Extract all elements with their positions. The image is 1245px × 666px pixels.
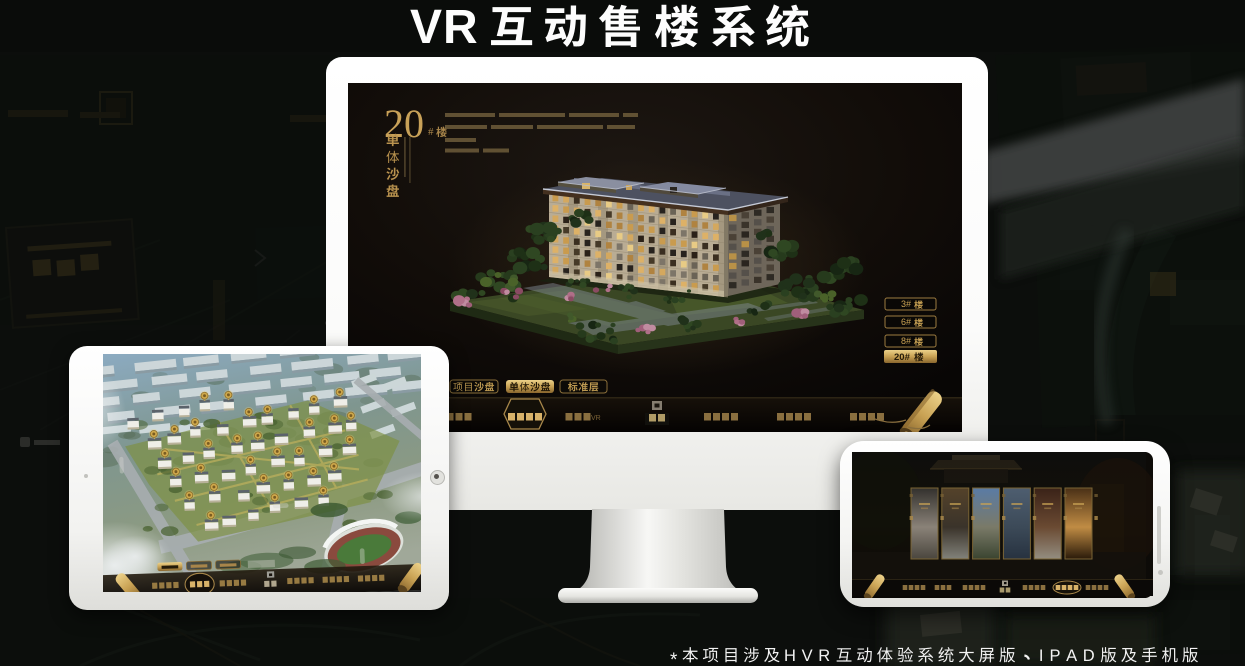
svg-text:H: H — [784, 647, 796, 665]
svg-text:V: V — [802, 647, 813, 665]
svg-text:*: * — [670, 650, 678, 666]
svg-text:6#: 6# — [901, 317, 911, 327]
svg-text:#: # — [428, 126, 434, 138]
svg-text:I: I — [1039, 647, 1044, 665]
svg-text:P: P — [1050, 647, 1061, 665]
svg-text:3#: 3# — [901, 299, 911, 309]
svg-text:D: D — [1083, 647, 1095, 665]
svg-text:20#: 20# — [894, 352, 911, 363]
svg-text:R: R — [818, 647, 830, 665]
svg-text:A: A — [1066, 647, 1077, 665]
svg-text:VR: VR — [410, 1, 479, 54]
svg-text:8#: 8# — [901, 336, 911, 346]
svg-text:VR: VR — [591, 415, 601, 422]
